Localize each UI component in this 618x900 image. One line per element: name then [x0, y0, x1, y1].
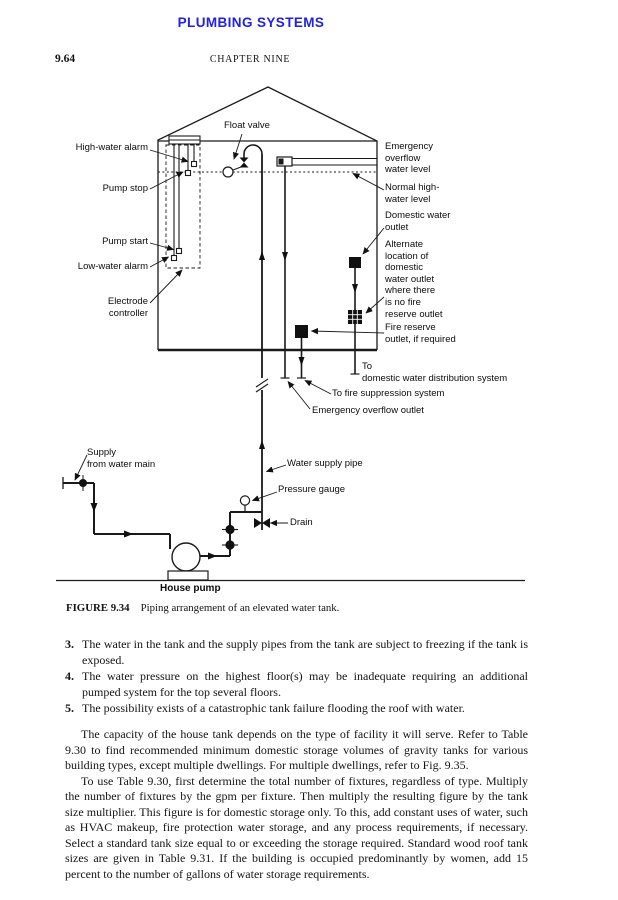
domestic-water-outlet-fitting [349, 257, 361, 268]
check-valve [225, 525, 234, 534]
body-paragraph: To use Table 9.30, first determine the t… [65, 774, 528, 883]
label-pump-stop: Pump stop [103, 183, 148, 195]
electrode-controller-assembly [166, 136, 200, 268]
label-normal-high-water-level: Normal high- water level [385, 182, 439, 205]
label-float-valve: Float valve [224, 120, 270, 132]
flow-arrow-up [259, 440, 265, 449]
drain-valve [262, 518, 270, 528]
figure-caption-label: FIGURE 9.34 [66, 602, 130, 614]
flow-arrow-down [352, 284, 358, 293]
pump-stop-sensor [186, 171, 191, 176]
flow-arrow-down [91, 503, 98, 512]
label-to-domestic-distribution: To domestic water distribution system [362, 361, 507, 384]
drain-valve [254, 518, 262, 528]
domestic-outlet-piping [348, 257, 362, 374]
pump-base [168, 571, 208, 580]
pressure-gauge-dial [240, 496, 249, 505]
pump-assembly [56, 496, 525, 581]
book-page: PLUMBING SYSTEMS 9.64 CHAPTER NINE [0, 0, 618, 900]
label-domestic-water-outlet: Domestic water outlet [385, 210, 450, 233]
list-item-number: 4. [65, 669, 74, 685]
list-item: 5. The possibility exists of a catastrop… [65, 701, 528, 717]
leader-normal-high-water-level [353, 174, 384, 191]
main-shutoff-valve [79, 479, 87, 487]
label-supply-from-water-main: Supply from water main [87, 447, 155, 470]
leader-domestic-water-outlet [363, 228, 384, 254]
leader-pump-start [150, 243, 174, 250]
label-emergency-overflow-water-level: Emergency overflow water level [385, 141, 433, 176]
list-item-text: The water pressure on the highest floor(… [82, 669, 528, 699]
label-pump-start: Pump start [102, 236, 148, 248]
label-fire-reserve-outlet: Fire reserve outlet, if required [385, 322, 456, 345]
figure-caption-text: Piping arrangement of an elevated water … [141, 602, 340, 614]
overflow-funnel-shade [279, 159, 284, 165]
leader-water-supply-pipe [267, 465, 287, 472]
flow-arrow-right [124, 531, 133, 538]
leader-to-fire-suppression [305, 381, 331, 395]
label-to-fire-suppression: To fire suppression system [332, 388, 444, 400]
fire-reserve-piping [295, 325, 308, 378]
house-pump-body [172, 543, 200, 571]
list-item-text: The possibility exists of a catastrophic… [82, 701, 465, 715]
float-arm [233, 167, 241, 170]
leader-emergency-overflow-outlet [288, 382, 310, 410]
leader-fire-reserve-outlet [312, 331, 385, 333]
label-low-water-alarm: Low-water alarm [78, 261, 148, 273]
water-main-supply [63, 475, 170, 549]
label-alternate-location: Alternate location of domestic water out… [385, 239, 443, 320]
leader-pump-stop [150, 172, 183, 189]
flow-arrow-down [282, 252, 288, 261]
shutoff-valve [225, 540, 234, 549]
list-item-number: 3. [65, 637, 74, 653]
figure-caption: FIGURE 9.34Piping arrangement of an elev… [66, 602, 339, 614]
emergency-overflow-piping [277, 157, 377, 378]
fire-reserve-outlet-fitting [295, 325, 308, 338]
alternate-outlet-fitting [348, 310, 362, 324]
flow-arrow-right [208, 553, 217, 560]
body-paragraphs: The capacity of the house tank depends o… [65, 727, 528, 882]
body-paragraph: The capacity of the house tank depends o… [65, 727, 528, 774]
leader-pressure-gauge [253, 492, 278, 501]
list-item-number: 5. [65, 701, 74, 717]
flow-arrow-down [299, 357, 305, 366]
pump-start-sensor [177, 249, 182, 254]
label-high-water-alarm: High-water alarm [76, 142, 148, 154]
label-house-pump: House pump [160, 583, 221, 595]
numbered-list: 3. The water in the tank and the supply … [65, 637, 528, 718]
list-item-text: The water in the tank and the supply pip… [82, 637, 528, 667]
list-item: 4. The water pressure on the highest flo… [65, 669, 528, 700]
label-drain: Drain [290, 517, 313, 529]
figure-9-34-diagram: Float valve High-water alarm Pump stop P… [0, 0, 618, 618]
label-pressure-gauge: Pressure gauge [278, 484, 345, 496]
leader-supply-from-main [75, 455, 87, 480]
leader-float-valve [234, 134, 242, 159]
label-electrode-controller: Electrode controller [108, 296, 148, 319]
leader-electrode-controller [150, 270, 182, 303]
label-water-supply-pipe: Water supply pipe [287, 458, 363, 470]
flow-arrow-up [259, 251, 265, 260]
water-supply-riser [223, 145, 268, 530]
float-valve-body [240, 158, 249, 163]
float-ball [223, 167, 233, 177]
list-item: 3. The water in the tank and the supply … [65, 637, 528, 668]
leader-alternate-location [366, 297, 384, 313]
low-water-alarm-sensor [172, 256, 177, 261]
label-emergency-overflow-outlet: Emergency overflow outlet [312, 405, 424, 417]
leader-high-water-alarm [150, 150, 188, 162]
riser-gooseneck [244, 145, 262, 158]
high-water-alarm-sensor [192, 162, 197, 167]
